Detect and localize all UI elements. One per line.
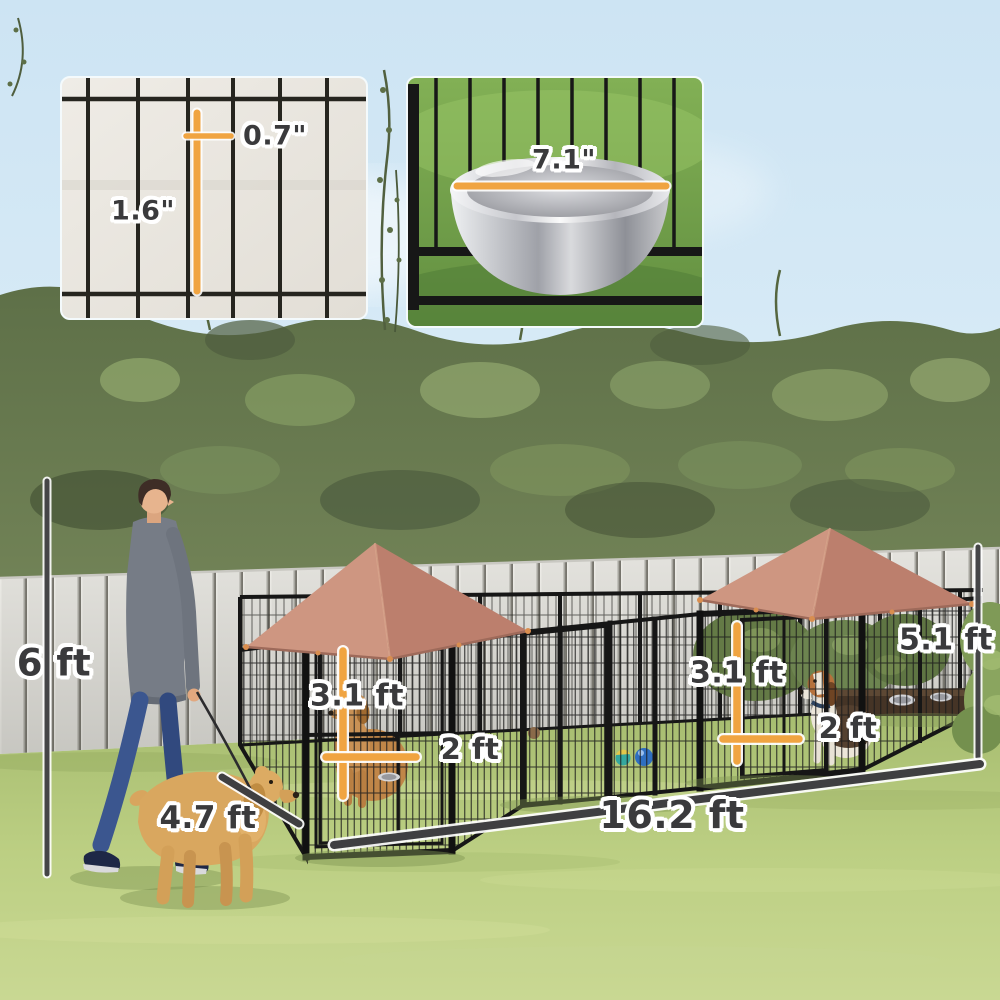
label-fence-height: 6 ft	[17, 642, 91, 685]
scene-illustration	[0, 0, 1000, 1000]
label-overall-run-length: 16.2 ft	[599, 793, 744, 837]
label-canopy-peak-height: 5.1 ft	[899, 623, 993, 658]
label-right-kennel-door-width: 2 ft	[819, 711, 878, 745]
label-mesh-opening-height: 1.6"	[111, 196, 175, 227]
label-bowl-diameter: 7.1"	[532, 145, 596, 176]
label-mesh-opening-width: 0.7"	[243, 121, 307, 152]
inset-mesh-detail	[62, 78, 366, 318]
label-left-kennel-door-width: 2 ft	[441, 732, 500, 766]
label-right-kennel-height: 3.1 ft	[690, 656, 784, 691]
product-dimension-image: 0.7" 1.6" 7.1" 6 ft 4.7 ft 3.1 ft 2 ft 3…	[0, 0, 1000, 1000]
label-dog-body-length: 4.7 ft	[159, 800, 256, 836]
label-left-kennel-height: 3.1 ft	[310, 679, 404, 714]
inset-bowl-detail	[370, 78, 740, 350]
